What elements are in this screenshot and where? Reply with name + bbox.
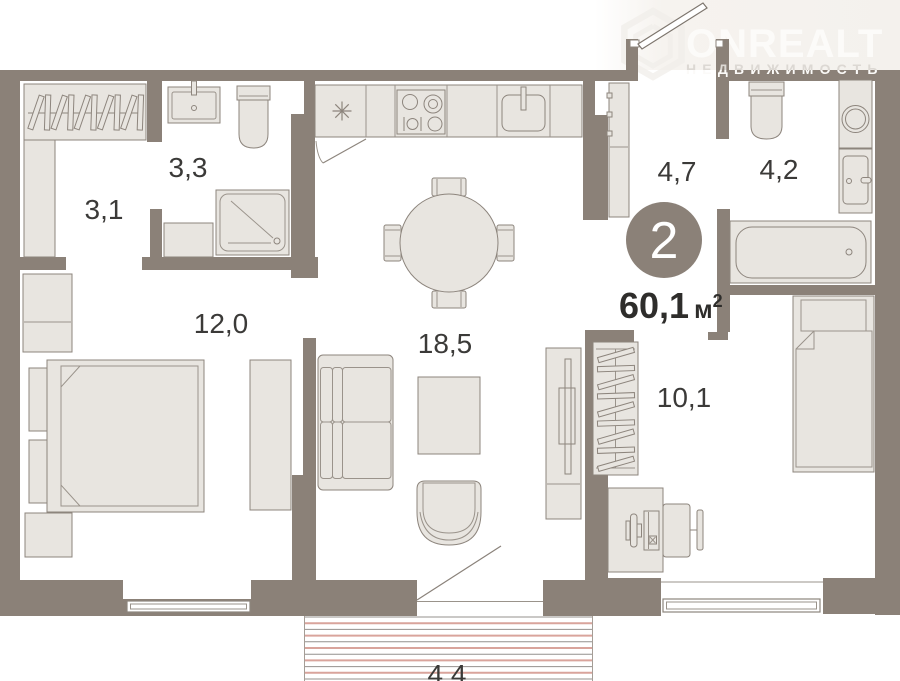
svg-text:10,1: 10,1 [657, 382, 712, 413]
svg-text:18,5: 18,5 [418, 328, 473, 359]
svg-text:12,0: 12,0 [194, 308, 249, 339]
svg-text:2: 2 [650, 212, 679, 270]
svg-text:3,1: 3,1 [85, 194, 124, 225]
svg-text:4,2: 4,2 [760, 154, 799, 185]
svg-text:4,7: 4,7 [658, 156, 697, 187]
svg-text:3,3: 3,3 [169, 152, 208, 183]
svg-text:4,4: 4,4 [428, 659, 467, 681]
